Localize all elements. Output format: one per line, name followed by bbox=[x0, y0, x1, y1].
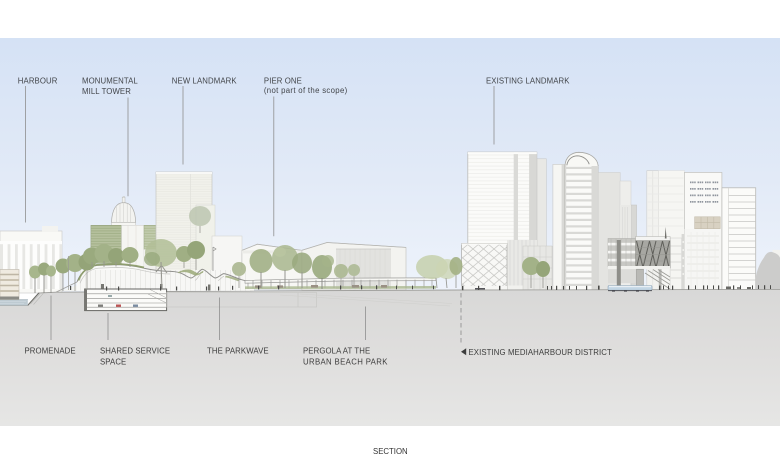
svg-text:SECTION: SECTION bbox=[373, 447, 408, 456]
svg-text:MILL TOWER: MILL TOWER bbox=[82, 87, 131, 96]
svg-text:PERGOLA AT THE: PERGOLA AT THE bbox=[303, 347, 370, 356]
svg-text:SPACE: SPACE bbox=[100, 358, 126, 367]
svg-text:NEW LANDMARK: NEW LANDMARK bbox=[172, 77, 238, 86]
svg-text:(not part of the scope): (not part of the scope) bbox=[264, 86, 348, 95]
svg-text:URBAN BEACH PARK: URBAN BEACH PARK bbox=[303, 358, 388, 367]
svg-text:PROMENADE: PROMENADE bbox=[25, 347, 76, 356]
svg-text:THE PARKWAVE: THE PARKWAVE bbox=[207, 347, 269, 356]
svg-text:EXISTING LANDMARK: EXISTING LANDMARK bbox=[486, 77, 570, 86]
svg-text:SHARED SERVICE: SHARED SERVICE bbox=[100, 347, 170, 356]
svg-text:HARBOUR: HARBOUR bbox=[18, 77, 58, 86]
svg-text:PIER ONE: PIER ONE bbox=[264, 77, 302, 86]
svg-text:EXISTING MEDIAHARBOUR DISTRICT: EXISTING MEDIAHARBOUR DISTRICT bbox=[469, 348, 612, 357]
svg-text:MONUMENTAL: MONUMENTAL bbox=[82, 77, 138, 86]
